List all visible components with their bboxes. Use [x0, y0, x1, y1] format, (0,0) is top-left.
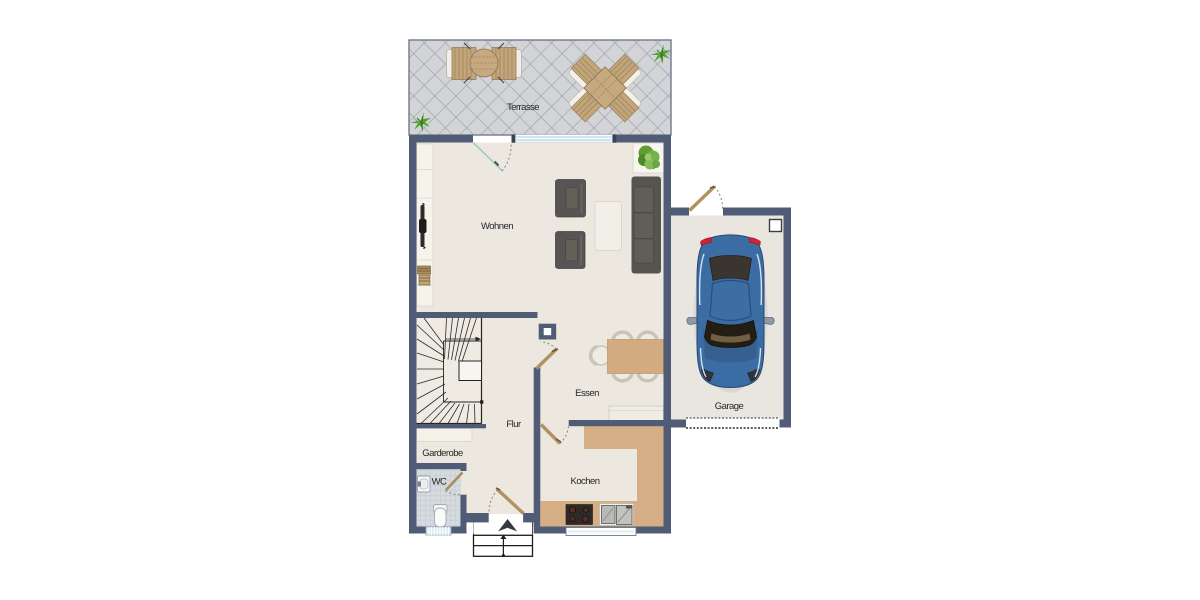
svg-text:Wohnen: Wohnen — [481, 221, 513, 232]
svg-text:WC: WC — [432, 477, 447, 488]
svg-text:Garderobe: Garderobe — [422, 448, 463, 459]
svg-text:Essen: Essen — [575, 388, 599, 399]
svg-text:Kochen: Kochen — [571, 476, 600, 487]
svg-text:Flur: Flur — [506, 419, 521, 430]
svg-text:Garage: Garage — [715, 401, 744, 412]
svg-text:Terrasse: Terrasse — [507, 102, 539, 113]
